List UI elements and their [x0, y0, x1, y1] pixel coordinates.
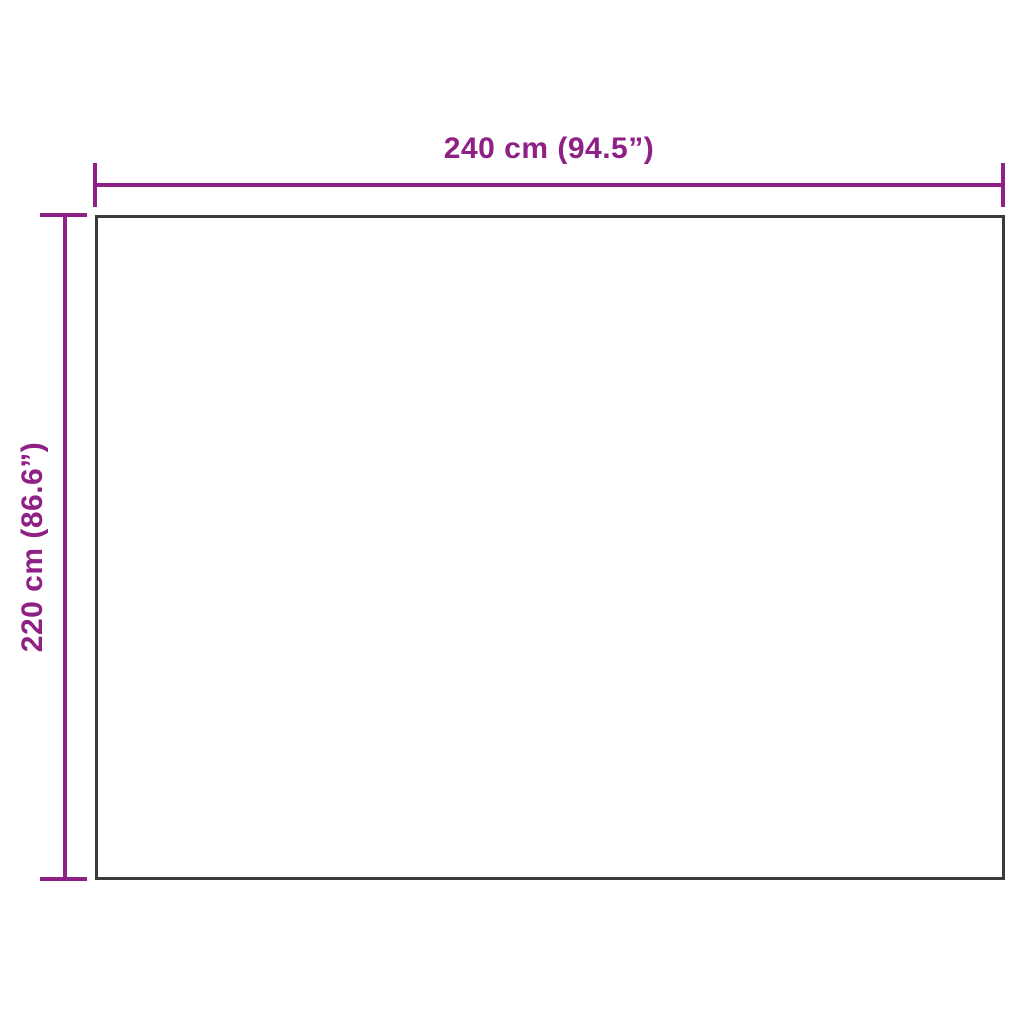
width-dimension-tick-left — [93, 163, 97, 207]
width-dimension-label: 240 cm (94.5”) — [95, 132, 1003, 166]
height-dimension-tick-bottom — [40, 877, 87, 881]
height-dimension-tick-top — [40, 213, 87, 217]
width-dimension-tick-right — [1001, 163, 1005, 207]
height-dimension-line — [63, 215, 67, 879]
width-dimension-line — [95, 183, 1003, 187]
height-dimension-label: 220 cm (86.6”) — [16, 442, 50, 652]
dimension-diagram: 240 cm (94.5”) 220 cm (86.6”) — [0, 0, 1024, 1024]
product-outline-rectangle — [95, 215, 1005, 880]
